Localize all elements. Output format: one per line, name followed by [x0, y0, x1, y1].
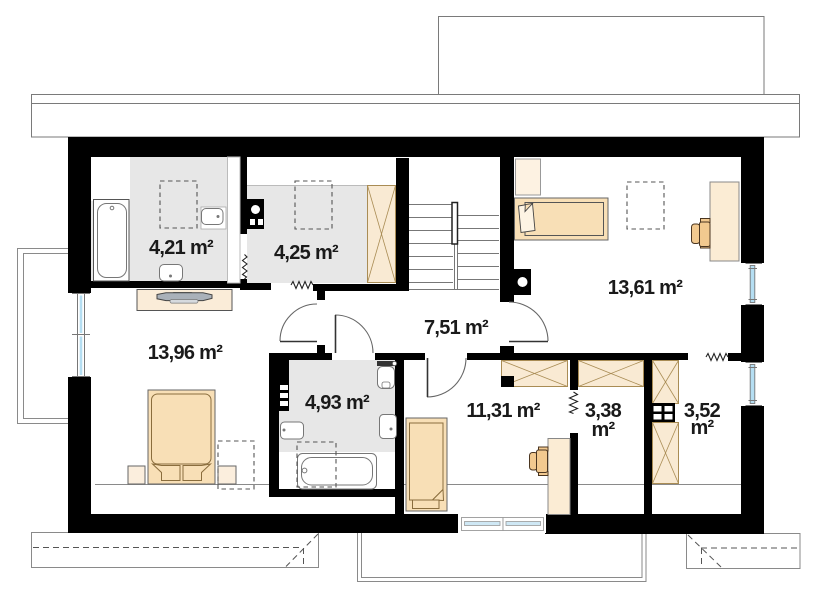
svg-text:11,31 m²: 11,31 m²: [466, 400, 540, 422]
svg-text:7,51 m²: 7,51 m²: [424, 317, 489, 339]
svg-text:m²: m²: [690, 417, 714, 439]
svg-text:4,93 m²: 4,93 m²: [305, 392, 370, 414]
svg-text:m²: m²: [591, 419, 615, 441]
svg-text:4,25 m²: 4,25 m²: [274, 242, 339, 264]
svg-text:13,96 m²: 13,96 m²: [148, 342, 223, 364]
svg-text:13,61 m²: 13,61 m²: [608, 277, 683, 299]
svg-text:4,21 m²: 4,21 m²: [149, 237, 214, 259]
